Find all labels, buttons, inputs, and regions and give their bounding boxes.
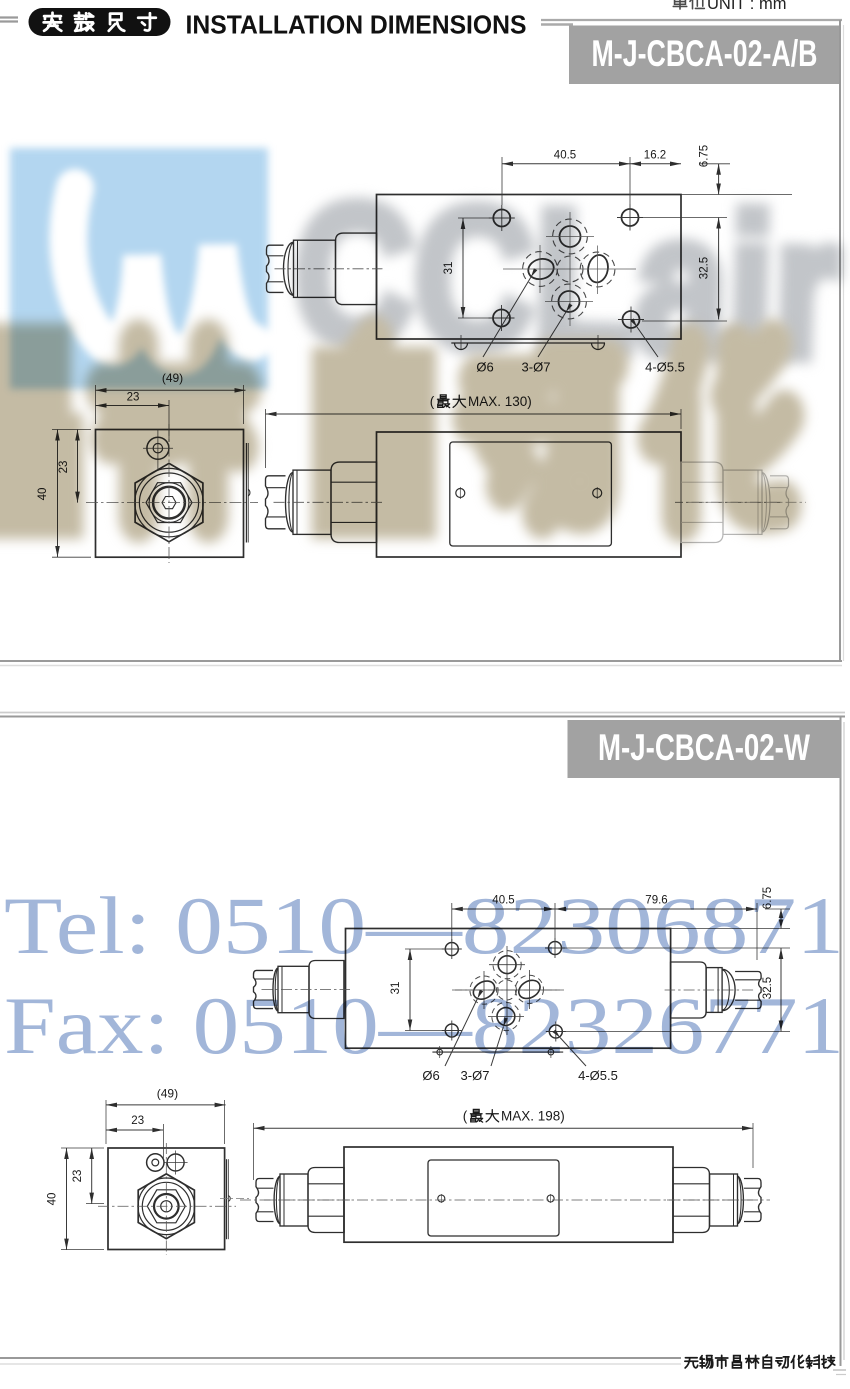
svg-text:23: 23 bbox=[72, 1170, 84, 1183]
svg-text:(: ( bbox=[463, 1109, 468, 1124]
svg-text:M-J-CBCA-02-A/B: M-J-CBCA-02-A/B bbox=[592, 33, 818, 74]
svg-text:MAX. 198): MAX. 198) bbox=[501, 1109, 565, 1124]
svg-text:UNIT : mm: UNIT : mm bbox=[707, 0, 786, 13]
svg-text:23: 23 bbox=[131, 1115, 144, 1127]
svg-text:16.2: 16.2 bbox=[644, 150, 666, 162]
svg-text:6.75: 6.75 bbox=[699, 145, 711, 167]
svg-text:Fax: 0510—82326771: Fax: 0510—82326771 bbox=[4, 980, 844, 1071]
svg-text:40: 40 bbox=[47, 1193, 59, 1206]
svg-text:Tel: 0510—82306871: Tel: 0510—82306871 bbox=[4, 880, 844, 971]
svg-text:40.5: 40.5 bbox=[554, 150, 576, 162]
svg-text:(49): (49) bbox=[157, 1087, 178, 1101]
svg-text:INSTALLATION DIMENSIONS: INSTALLATION DIMENSIONS bbox=[186, 10, 527, 40]
svg-text:M-J-CBCA-02-W: M-J-CBCA-02-W bbox=[598, 727, 810, 768]
